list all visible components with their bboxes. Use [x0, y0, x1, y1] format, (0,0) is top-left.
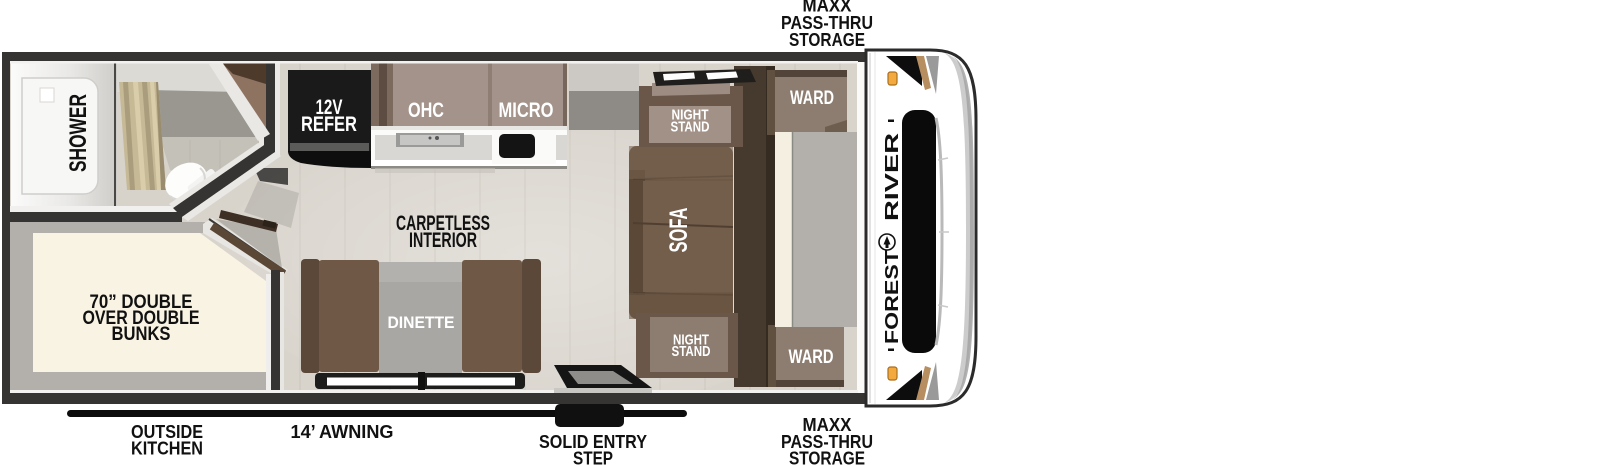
svg-text:WARD: WARD — [789, 347, 834, 368]
svg-text:14’ AWNING: 14’ AWNING — [291, 422, 394, 442]
svg-text:WARD: WARD — [790, 88, 834, 109]
svg-text:STORAGE: STORAGE — [789, 449, 865, 466]
svg-text:DINETTE: DINETTE — [388, 313, 455, 332]
svg-text:MICRO: MICRO — [499, 99, 554, 122]
svg-text:REFER: REFER — [301, 113, 357, 136]
svg-text:INTERIOR: INTERIOR — [409, 229, 477, 252]
svg-text:SHOWER: SHOWER — [65, 94, 92, 172]
svg-text:BUNKS: BUNKS — [112, 323, 171, 345]
svg-text:FOREST: FOREST — [882, 250, 902, 344]
svg-text:OHC: OHC — [408, 99, 444, 122]
svg-text:SOFA: SOFA — [665, 208, 693, 253]
svg-text:RIVER: RIVER — [882, 133, 902, 221]
svg-text:STEP: STEP — [573, 449, 613, 466]
svg-text:STAND: STAND — [671, 119, 710, 136]
svg-text:STORAGE: STORAGE — [789, 30, 865, 50]
svg-text:STAND: STAND — [672, 343, 711, 360]
svg-text:KITCHEN: KITCHEN — [131, 439, 203, 459]
